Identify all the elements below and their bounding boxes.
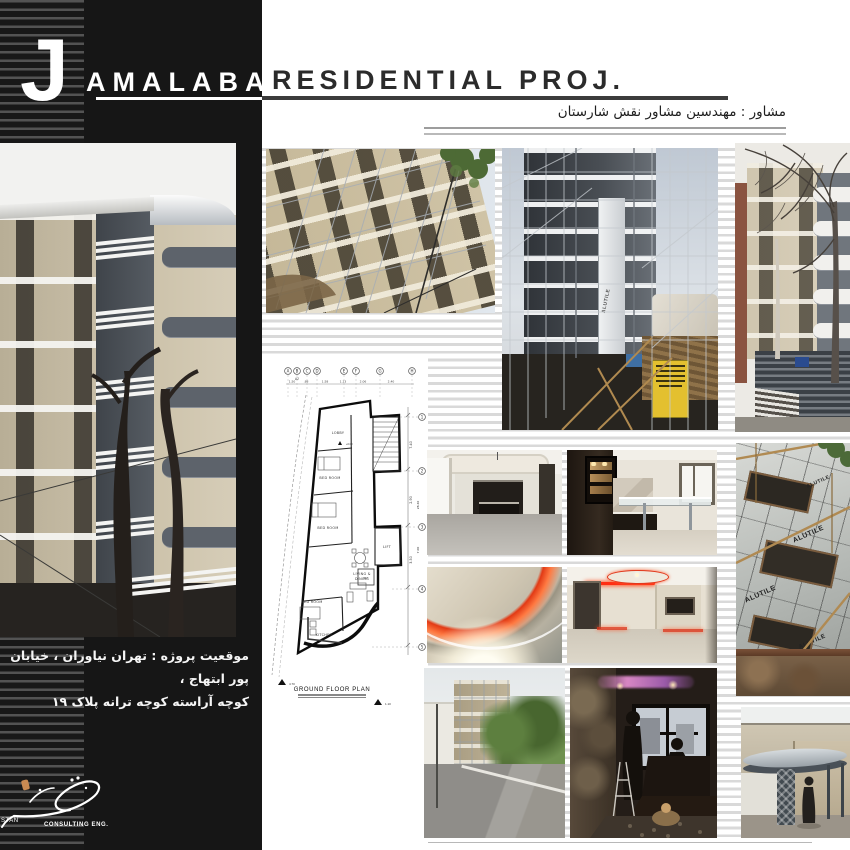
plan-grid-number: 4 — [421, 587, 424, 592]
consultant-rule-1 — [424, 127, 786, 129]
plan-grid-number: 1 — [421, 415, 424, 420]
title-type: RESIDENTIAL PROJ. — [272, 65, 625, 96]
plan-grid-letter: D — [315, 369, 318, 374]
p8-door — [573, 581, 601, 633]
p11-excavation — [736, 655, 850, 696]
p5-ceiling-cove — [441, 454, 549, 474]
plan-dim: 2.40 — [388, 380, 395, 384]
plan-room-lift: LIFT — [383, 545, 392, 549]
project-location-text: موقعیت پروژه : تهران نیاوران ، خیابان پو… — [8, 644, 255, 713]
logo-stan-text: STAN — [1, 818, 19, 824]
photo-construction-tilted — [266, 149, 495, 313]
plan-right-dim: 7.00 — [416, 547, 420, 554]
p12-person-silhouette — [741, 707, 850, 838]
p4-tree-branches — [735, 143, 850, 432]
plan-grid-number: 5 — [421, 645, 424, 650]
plan-caption: GROUND FLOOR PLAN — [294, 687, 371, 693]
title-underline-white — [96, 97, 262, 100]
plan-dim: 1.13 — [340, 380, 347, 384]
plan-level-mark: +0.00 — [346, 442, 353, 446]
plan-grid-letter: G — [378, 369, 381, 374]
plan-mark-right: 1.10 — [385, 702, 391, 706]
project-location-line1: موقعیت پروژه : تهران نیاوران ، خیابان پو… — [8, 644, 249, 690]
plan-dim: 2.06 — [360, 380, 367, 384]
consultant-rule-2 — [424, 133, 786, 135]
plan-grid-number: 2 — [421, 469, 424, 474]
p6-spotlights — [587, 462, 609, 466]
photo-street-view — [424, 668, 565, 838]
plan-room-lobby: LOBBY — [332, 431, 345, 435]
plan-right-dim: 28.40 — [416, 501, 420, 510]
p6-backsplash — [613, 478, 653, 512]
company-logo: STAN CONSULTING ENG. — [0, 772, 132, 840]
p6-window-mullion — [693, 466, 695, 496]
plan-dim: 1.58 — [322, 380, 329, 384]
plan-dim: 1.50 — [289, 380, 296, 384]
title-name: AMALABAD — [86, 67, 298, 98]
consultant-line: مشاور : مهندسین مشاور نقش شارستان — [430, 104, 786, 120]
p5-right-doorway — [539, 464, 555, 514]
p6-glass-bar — [619, 497, 711, 506]
p8-floor — [567, 629, 717, 663]
p10-people-silhouettes — [570, 668, 717, 838]
plan-outer-wall — [298, 401, 401, 653]
plan-grid-letter: F — [355, 369, 358, 374]
photo-street-building — [735, 143, 850, 432]
photo-alutile-facade: ALUTILE ALUTILE ALUTILE ALUTILE — [736, 443, 850, 696]
logo-calligraphy-icon: STAN CONSULTING ENG. — [0, 772, 132, 840]
plan-grid-letter: B — [296, 369, 299, 374]
p8-floor-red-glow-right — [663, 629, 703, 632]
plan-room-bed2: BED ROOM — [317, 526, 338, 530]
plan-right-dim: 2.90 — [409, 496, 413, 504]
plan-grid-letter: E — [343, 369, 346, 374]
p6-floor — [613, 530, 717, 555]
p7-gypsum-edge — [427, 567, 562, 650]
p1-trees-overlay — [0, 143, 236, 637]
plan-grid-letter: C — [306, 369, 309, 374]
plan-room-kitchen: KITCHEN — [316, 633, 333, 637]
p9-pole — [436, 704, 438, 808]
plan-dim: .88 — [304, 380, 309, 384]
title-initial: J — [20, 26, 69, 114]
p5-pendant-lamp — [497, 452, 498, 460]
plan-grid-letter: H — [410, 369, 413, 374]
p6-counter — [613, 512, 657, 532]
p5-floor — [427, 514, 562, 555]
title-underline-dark — [262, 96, 728, 100]
photo-interior-redroom — [567, 567, 717, 663]
photo-interior-living — [427, 450, 562, 555]
floor-plan: A B C D E F G H A2 1.50 .88 1.58 1.13 2.… — [262, 355, 428, 843]
plan-grid-letter: A — [287, 369, 290, 374]
p8-floor-red-glow-left — [597, 627, 627, 630]
plan-room-bed1: BED ROOM — [319, 476, 340, 480]
plan-grid-number: 3 — [421, 525, 424, 530]
photo-canopy — [741, 707, 850, 838]
plan-mark-left: 4.70 — [289, 682, 295, 686]
photo-interior-kitchen — [567, 450, 717, 555]
photo-scaffold-tower: ALUTILE — [502, 148, 718, 430]
p2-scaffold-lines — [266, 149, 495, 313]
p11-rusty-beam — [736, 649, 850, 656]
logo-consulting-text: CONSULTING ENG. — [44, 822, 109, 828]
photo-ceiling-red — [427, 567, 562, 663]
plan-room-wc: WC — [363, 576, 368, 580]
project-location-line2: کوچه آراسته کوچه ترانه پلاک ۱۹ — [8, 690, 249, 713]
portfolio-board: J AMALABAD RESIDENTIAL PROJ. مشاور : مهن… — [0, 0, 850, 850]
p3-scaffolding — [502, 148, 718, 430]
p8-right-shadow — [705, 567, 717, 663]
photo-main-building — [0, 143, 236, 637]
photo-people-interior — [570, 668, 717, 838]
plan-room-bed3: BED ROOM — [301, 600, 322, 604]
plan-right-dim: 3.50 — [409, 556, 413, 564]
plan-right-dim: 7.40 — [409, 441, 413, 449]
p8-niche — [665, 597, 695, 615]
p5-left-window — [427, 458, 452, 514]
p8-ceiling-oval — [607, 570, 669, 584]
p8-lamp — [635, 573, 639, 577]
